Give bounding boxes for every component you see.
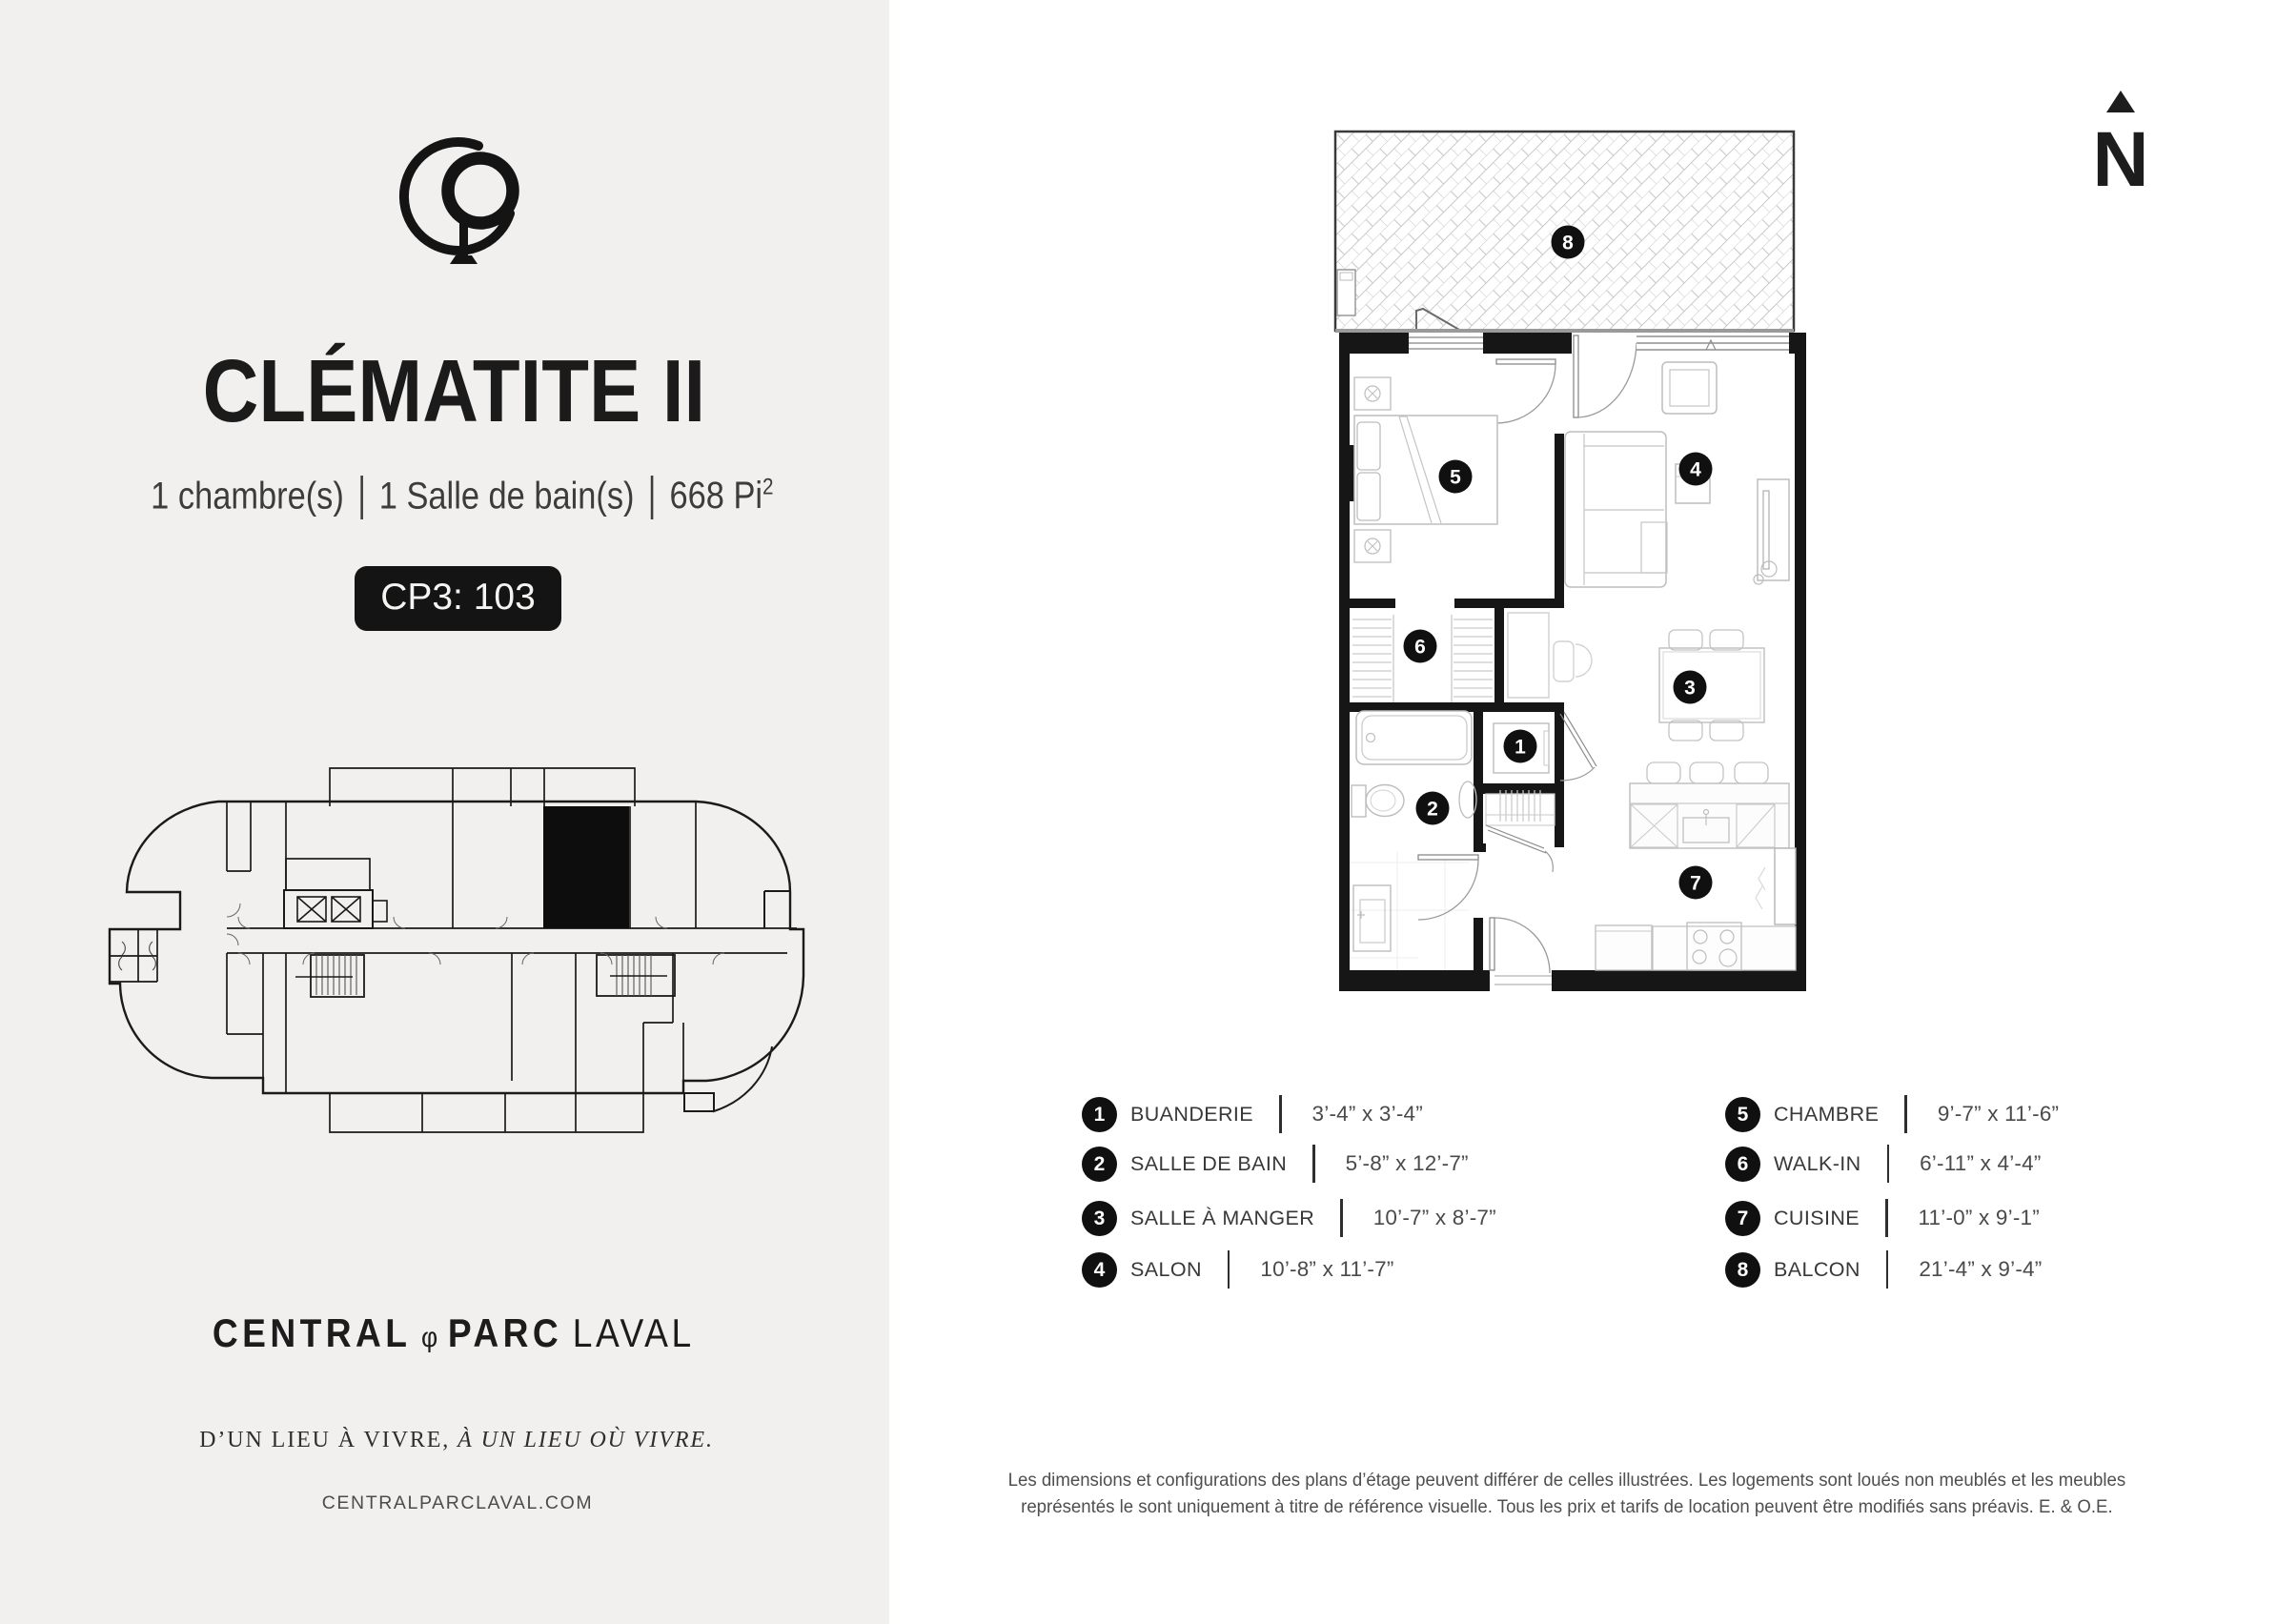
svg-text:5: 5	[1450, 467, 1461, 489]
svg-text:1: 1	[1515, 737, 1526, 759]
svg-text:3: 3	[1684, 678, 1696, 700]
svg-text:N: N	[2092, 116, 2148, 198]
svg-text:7: 7	[1690, 873, 1701, 895]
svg-text:2: 2	[1427, 799, 1438, 821]
svg-text:4: 4	[1690, 459, 1701, 481]
svg-text:8: 8	[1562, 233, 1574, 254]
svg-text:6: 6	[1414, 637, 1426, 659]
